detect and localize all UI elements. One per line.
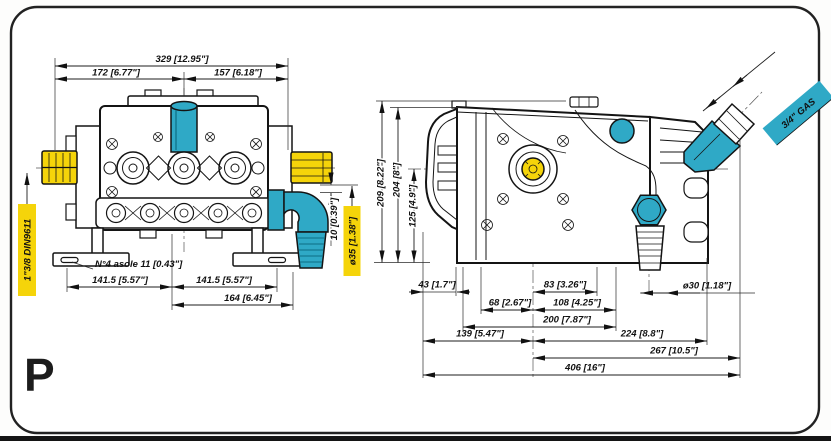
dim-side-406: 406 [16"] <box>564 363 606 374</box>
dim-side-43: 43 [1.7"] <box>417 280 456 291</box>
dim-side-139: 139 [5.47"] <box>456 329 505 340</box>
dim-side-108: 108 [4.25"] <box>553 298 602 309</box>
front-valve-plugs <box>104 152 264 184</box>
sheet-bottom-bar <box>0 436 831 441</box>
side-hose-barb <box>636 226 664 270</box>
dim-side-224: 224 [8.8"] <box>620 329 664 340</box>
dim-side-height-shaft: 125 [4.9"] <box>407 184 418 227</box>
dim-front-total-width: 329 [12.95"] <box>155 54 209 65</box>
dim-front-left-width: 172 [6.77"] <box>92 68 141 79</box>
side-shaft-end <box>509 145 557 193</box>
dim-side-hose-od: ø30 [1.18"] <box>683 281 732 292</box>
dim-side-200: 200 [7.87"] <box>542 315 592 326</box>
dim-front-stub-height: 10 [0.39"] <box>329 197 340 240</box>
dim-front-feet-right: 141.5 [5.57"] <box>196 275 253 286</box>
dim-front-outlet-offset: 164 [6.45"] <box>224 293 273 304</box>
svg-text:1"3/8 DIN9611: 1"3/8 DIN9611 <box>23 219 34 281</box>
dim-side-height-total: 209 [8.22"] <box>375 158 386 208</box>
dim-side-height-top: 204 [8"] <box>391 162 402 198</box>
dim-front-right-width: 157 [6.18"] <box>214 68 263 79</box>
front-hose-od-label: ø35 [1.38"] <box>344 206 361 276</box>
dim-side-267: 267 [10.5"] <box>649 346 699 357</box>
dim-side-83: 83 [3.26"] <box>544 280 587 291</box>
pump-dimensional-drawing: P <box>0 0 831 441</box>
dim-front-feet-left: 141.5 [5.57"] <box>92 275 149 286</box>
dim-side-68: 68 [2.67"] <box>489 298 532 309</box>
drawing-sheet: P <box>0 0 831 441</box>
front-shaft-right <box>291 152 332 183</box>
front-shaft-left <box>42 151 77 184</box>
svg-text:ø35 [1.38"]: ø35 [1.38"] <box>347 216 358 265</box>
side-hex-plug <box>632 195 666 224</box>
front-inlet-port <box>171 102 197 153</box>
side-top-plug <box>610 119 634 143</box>
model-letter: P <box>24 349 55 401</box>
note-front-slots: N°4 asole 11 [0.43"] <box>95 259 183 270</box>
